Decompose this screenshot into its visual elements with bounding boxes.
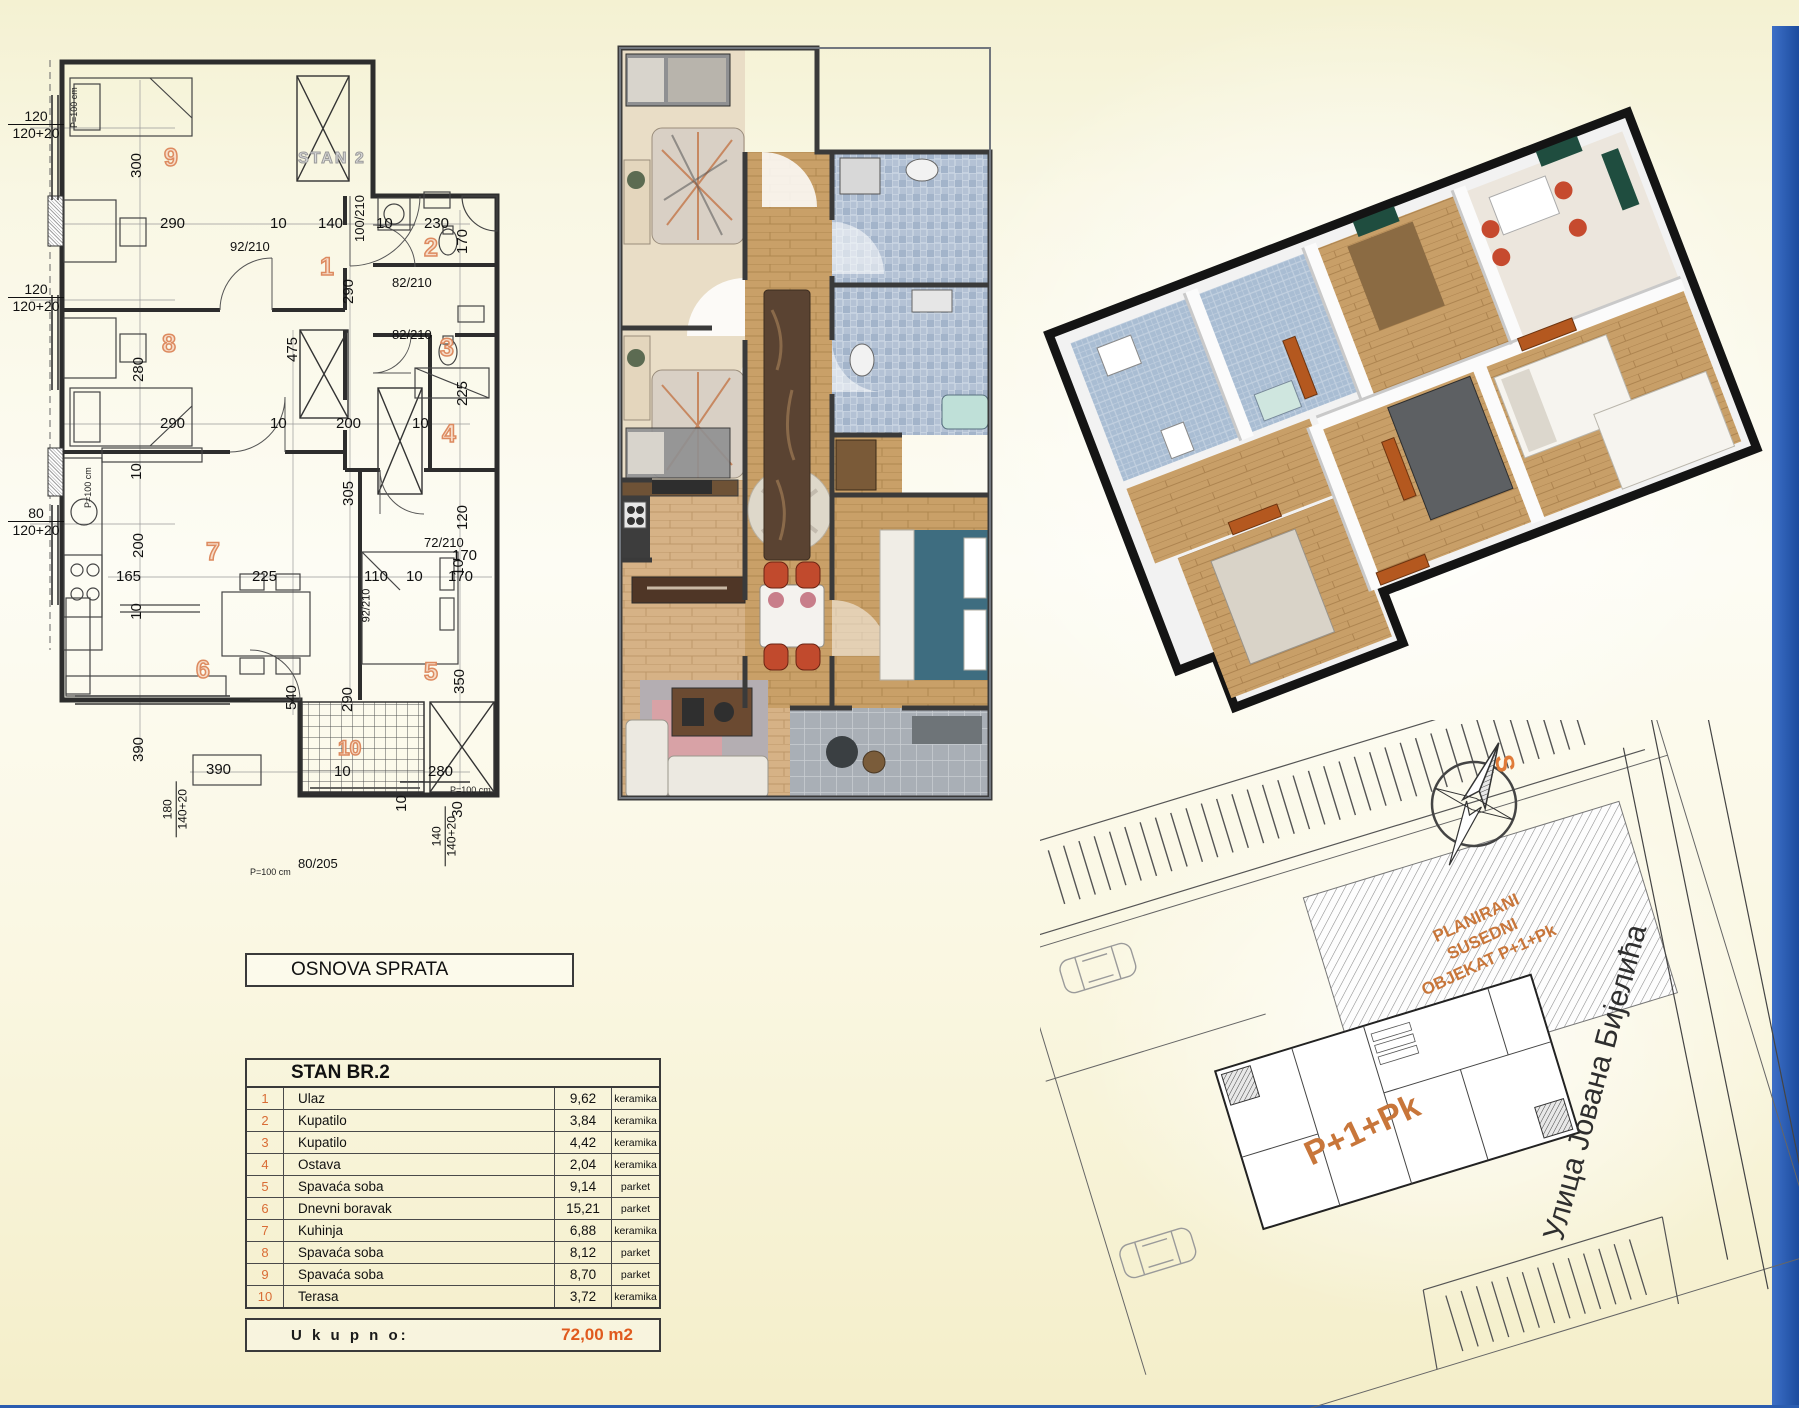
row-name: Spavaća soba xyxy=(284,1176,555,1197)
door-label: 82/210 xyxy=(392,328,432,341)
dim-label: 390 xyxy=(131,737,146,762)
floor-title: OSNOVA SPRATA xyxy=(247,959,448,981)
row-area: 8,70 xyxy=(555,1264,612,1285)
apartment-title: STAN BR.2 xyxy=(247,1062,390,1084)
bedroom-furniture xyxy=(64,78,192,446)
row-area: 4,42 xyxy=(555,1132,612,1153)
room-number-9: 9 xyxy=(164,146,178,171)
door-label: 80/205 xyxy=(298,857,338,870)
row-floor: parket xyxy=(612,1242,659,1263)
dim-label: 10 xyxy=(406,569,423,584)
row-name: Kupatilo xyxy=(284,1110,555,1131)
dim-label: 10 xyxy=(451,559,466,576)
dim-fraction: 80120+20 xyxy=(8,505,64,538)
compass xyxy=(1408,728,1548,868)
dim-label: 540 xyxy=(284,685,299,710)
dimension-chains xyxy=(30,80,492,790)
row-area: 2,04 xyxy=(555,1154,612,1175)
dim-label: 170 xyxy=(455,229,470,254)
dim-label: 200 xyxy=(336,416,361,431)
dim-label: 10 xyxy=(412,416,429,431)
parking-ticks-bottom xyxy=(1446,1239,1647,1351)
terrace-grid xyxy=(302,702,424,792)
dim-label: 100/210 xyxy=(353,195,366,242)
row-area: 3,72 xyxy=(555,1286,612,1307)
floor-title-box: OSNOVA SPRATA xyxy=(245,953,574,987)
dim-label: 30 xyxy=(450,801,465,818)
dim-fraction: 120120+20 xyxy=(8,108,64,141)
dim-label: 10 xyxy=(334,764,351,779)
row-name: Terasa xyxy=(284,1286,555,1307)
dim-label: 475 xyxy=(285,337,300,362)
row-name: Kuhinja xyxy=(284,1220,555,1241)
row-name: Spavaća soba xyxy=(284,1264,555,1285)
row-floor: parket xyxy=(612,1176,659,1197)
row-area: 9,14 xyxy=(555,1176,612,1197)
row-area: 6,88 xyxy=(555,1220,612,1241)
table-row: 9 Spavaća soba 8,70 parket xyxy=(247,1264,659,1286)
row-floor: keramika xyxy=(612,1132,659,1153)
dim-label: 225 xyxy=(252,569,277,584)
row-floor: keramika xyxy=(612,1110,659,1131)
hatched-pier xyxy=(48,448,63,496)
row-area: 3,84 xyxy=(555,1110,612,1131)
room-number-2: 2 xyxy=(424,236,438,261)
parapet-label: P=100 cm xyxy=(70,87,79,128)
dim-label: 290 xyxy=(340,687,355,712)
dim-label: 10 xyxy=(129,463,144,480)
row-name: Dnevni boravak xyxy=(284,1198,555,1219)
room-number-1: 1 xyxy=(320,255,334,280)
total-box: U k u p n o: 72,00 m2 xyxy=(245,1318,661,1352)
dim-label: 165 xyxy=(116,569,141,584)
door-label: 92/210 xyxy=(361,589,372,623)
room-number-3: 3 xyxy=(440,336,454,361)
dim-label: 10 xyxy=(394,795,409,812)
row-name: Kupatilo xyxy=(284,1132,555,1153)
row-num: 8 xyxy=(247,1242,284,1263)
parapet-label: P=100 cm xyxy=(84,467,93,508)
room-number-7: 7 xyxy=(206,540,220,565)
dim-label: 10 xyxy=(129,603,144,620)
car xyxy=(1117,1226,1198,1280)
dim-label: 390 xyxy=(206,762,231,777)
dim-label: 280 xyxy=(428,764,453,779)
table-row: 10 Terasa 3,72 keramika xyxy=(247,1286,659,1307)
dim-fraction: 120120+20 xyxy=(8,281,64,314)
table-row: 2 Kupatilo 3,84 keramika xyxy=(247,1110,659,1132)
row-num: 4 xyxy=(247,1154,284,1175)
table-row: 8 Spavaća soba 8,12 parket xyxy=(247,1242,659,1264)
row-area: 15,21 xyxy=(555,1198,612,1219)
row-floor: parket xyxy=(612,1198,659,1219)
dim-label: 200 xyxy=(131,533,146,558)
rendered-floor-plan xyxy=(612,40,997,810)
row-area: 9,62 xyxy=(555,1088,612,1109)
row-num: 2 xyxy=(247,1110,284,1131)
dim-label: 290 xyxy=(341,279,356,304)
tech-plan-title: STAN 2 xyxy=(298,150,366,168)
dim-label: 290 xyxy=(160,216,185,231)
dim-label: 120 xyxy=(455,505,470,530)
car xyxy=(1058,941,1139,995)
render3d-body xyxy=(1049,112,1777,722)
dim-label: 140 xyxy=(318,216,343,231)
table-row: 4 Ostava 2,04 keramika xyxy=(247,1154,659,1176)
row-floor: keramika xyxy=(612,1088,659,1109)
row-num: 5 xyxy=(247,1176,284,1197)
door-label: 92/210 xyxy=(230,240,270,253)
row-name: Ulaz xyxy=(284,1088,555,1109)
apartment-table-header: STAN BR.2 xyxy=(247,1060,659,1088)
dim-label: 350 xyxy=(452,669,467,694)
nook-desk xyxy=(836,440,876,490)
row-floor: parket xyxy=(612,1264,659,1285)
row-floor: keramika xyxy=(612,1220,659,1241)
door-label: 82/210 xyxy=(392,276,432,289)
room-number-6: 6 xyxy=(196,658,210,683)
row-name: Spavaća soba xyxy=(284,1242,555,1263)
table-row: 3 Kupatilo 4,42 keramika xyxy=(247,1132,659,1154)
dim-label: 305 xyxy=(341,481,356,506)
dim-label: 10 xyxy=(376,216,393,231)
dim-fraction: 180140+20 xyxy=(162,781,191,837)
table-row: 7 Kuhinja 6,88 keramika xyxy=(247,1220,659,1242)
dim-label: 10 xyxy=(270,216,287,231)
dim-label: 110 xyxy=(364,569,388,584)
apartment-table: STAN BR.2 1 Ulaz 9,62 keramika 2 Kupatil… xyxy=(245,1058,661,1309)
table-row: 5 Spavaća soba 9,14 parket xyxy=(247,1176,659,1198)
row-floor: keramika xyxy=(612,1286,659,1307)
dim-label: 230 xyxy=(424,216,449,231)
dim-label: 280 xyxy=(131,357,146,382)
room-number-5: 5 xyxy=(424,660,438,685)
row-num: 9 xyxy=(247,1264,284,1285)
total-value: 72,00 m2 xyxy=(561,1325,659,1345)
dim-label: 290 xyxy=(160,416,185,431)
room-number-4: 4 xyxy=(442,422,456,447)
parapet-label: P=100 cm xyxy=(250,868,291,877)
dim-label: 300 xyxy=(129,153,144,178)
parapet-label: P=100 cm xyxy=(450,786,491,795)
table-row: 1 Ulaz 9,62 keramika xyxy=(247,1088,659,1110)
render-3d xyxy=(1020,10,1799,790)
total-label: U k u p n o: xyxy=(247,1327,409,1344)
row-num: 10 xyxy=(247,1286,284,1307)
row-num: 3 xyxy=(247,1132,284,1153)
row-num: 7 xyxy=(247,1220,284,1241)
row-num: 6 xyxy=(247,1198,284,1219)
row-area: 8,12 xyxy=(555,1242,612,1263)
dim-label: 225 xyxy=(455,381,470,406)
page-canvas: STAN 2 120120+20 120120+20 80120+20 1801… xyxy=(0,0,1799,1408)
table-row: 6 Dnevni boravak 15,21 parket xyxy=(247,1198,659,1220)
dim-label: 10 xyxy=(270,416,287,431)
room-number-10: 10 xyxy=(338,738,361,759)
room-number-8: 8 xyxy=(162,332,176,357)
row-floor: keramika xyxy=(612,1154,659,1175)
hatched-pier xyxy=(48,196,63,246)
row-num: 1 xyxy=(247,1088,284,1109)
row-name: Ostava xyxy=(284,1154,555,1175)
bedroom5-render xyxy=(880,530,990,680)
